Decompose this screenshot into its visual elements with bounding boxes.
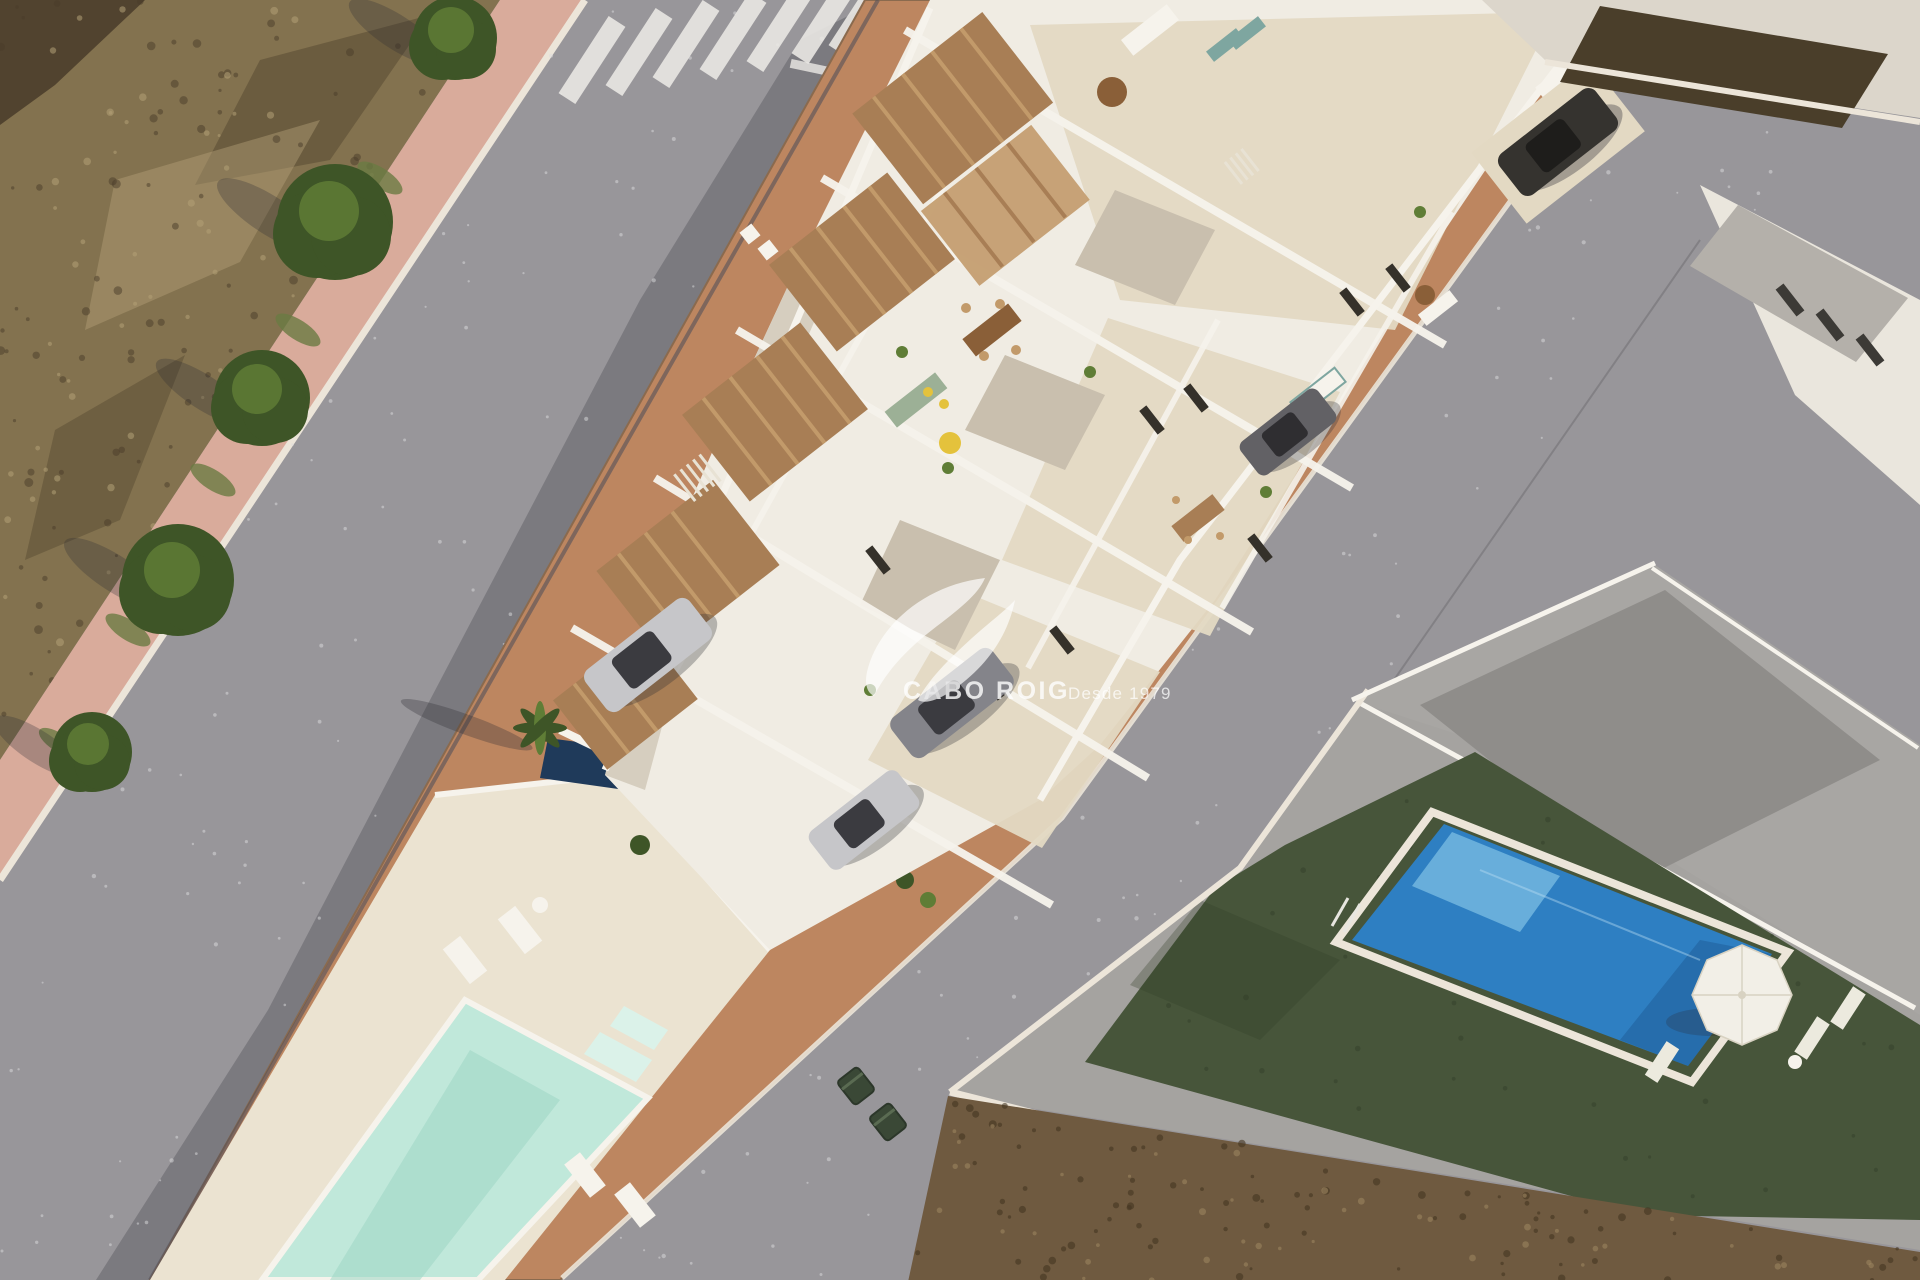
render-canvas: CABO ROIG Desde 1979 (0, 0, 1920, 1280)
parasol (1415, 285, 1435, 305)
plant (1414, 206, 1426, 218)
plant (1260, 486, 1272, 498)
plant (1084, 366, 1096, 378)
watermark-tagline: Desde 1979 (1068, 684, 1172, 703)
beanbag (939, 432, 961, 454)
plant (896, 346, 908, 358)
plant (942, 462, 954, 474)
shrub (630, 835, 650, 855)
watermark-brand: CABO ROIG (903, 677, 1070, 705)
planter (920, 892, 936, 908)
aerial-render-image: CABO ROIG Desde 1979 (0, 0, 1920, 1280)
round-table (1097, 77, 1127, 107)
